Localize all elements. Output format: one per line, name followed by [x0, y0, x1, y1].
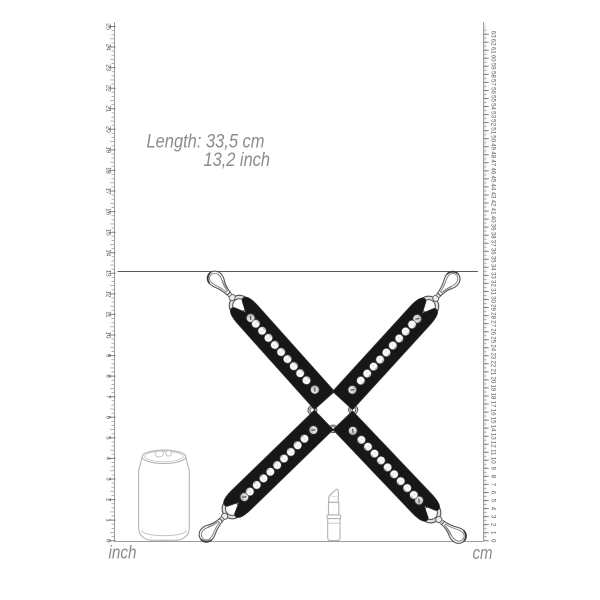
svg-text:13: 13: [104, 270, 111, 277]
svg-text:inch: inch: [109, 542, 137, 563]
svg-text:13,2 inch: 13,2 inch: [204, 150, 271, 171]
svg-text:4: 4: [490, 507, 497, 511]
svg-text:15: 15: [490, 417, 497, 424]
svg-text:7: 7: [104, 395, 111, 399]
svg-text:46: 46: [490, 167, 497, 174]
svg-text:3: 3: [104, 477, 111, 481]
svg-text:4: 4: [104, 457, 111, 461]
svg-text:8: 8: [490, 475, 497, 479]
svg-text:31: 31: [490, 288, 497, 295]
svg-text:48: 48: [490, 151, 497, 158]
svg-text:20: 20: [104, 126, 111, 133]
svg-text:30: 30: [490, 296, 497, 303]
svg-text:58: 58: [490, 71, 497, 78]
svg-text:28: 28: [490, 312, 497, 319]
svg-text:26: 26: [490, 328, 497, 335]
svg-text:43: 43: [490, 192, 497, 199]
svg-text:25: 25: [104, 23, 111, 30]
svg-text:41: 41: [490, 208, 497, 215]
svg-text:23: 23: [490, 352, 497, 359]
svg-text:40: 40: [490, 216, 497, 223]
svg-text:24: 24: [490, 344, 497, 351]
svg-text:2: 2: [490, 523, 497, 527]
svg-text:1: 1: [490, 531, 497, 535]
svg-text:20: 20: [490, 376, 497, 383]
svg-text:18: 18: [104, 167, 111, 174]
svg-text:29: 29: [490, 304, 497, 311]
svg-text:38: 38: [490, 232, 497, 239]
svg-text:21: 21: [104, 105, 111, 112]
svg-text:9: 9: [490, 467, 497, 471]
svg-text:3: 3: [490, 515, 497, 519]
svg-text:21: 21: [490, 368, 497, 375]
svg-text:53: 53: [490, 111, 497, 118]
svg-text:16: 16: [104, 208, 111, 215]
svg-text:22: 22: [490, 360, 497, 367]
svg-text:6: 6: [490, 491, 497, 495]
svg-text:52: 52: [490, 119, 497, 126]
svg-text:55: 55: [490, 95, 497, 102]
svg-text:60: 60: [490, 55, 497, 62]
svg-text:47: 47: [490, 159, 497, 166]
svg-text:39: 39: [490, 224, 497, 231]
svg-text:36: 36: [490, 248, 497, 255]
svg-text:15: 15: [104, 229, 111, 236]
svg-text:23: 23: [104, 64, 111, 71]
svg-text:63: 63: [490, 31, 497, 38]
svg-text:44: 44: [490, 183, 497, 190]
svg-text:25: 25: [490, 336, 497, 343]
svg-text:22: 22: [104, 85, 111, 92]
svg-text:6: 6: [104, 416, 111, 420]
svg-text:37: 37: [490, 240, 497, 247]
svg-text:8: 8: [104, 374, 111, 378]
svg-text:cm: cm: [473, 542, 493, 563]
svg-text:19: 19: [490, 384, 497, 391]
svg-text:18: 18: [490, 393, 497, 400]
svg-text:12: 12: [490, 441, 497, 448]
svg-text:59: 59: [490, 63, 497, 70]
svg-text:49: 49: [490, 143, 497, 150]
svg-text:61: 61: [490, 47, 497, 54]
svg-text:16: 16: [490, 409, 497, 416]
svg-text:12: 12: [104, 290, 111, 297]
svg-text:56: 56: [490, 87, 497, 94]
svg-text:62: 62: [490, 39, 497, 46]
svg-text:11: 11: [104, 311, 111, 318]
svg-text:34: 34: [490, 264, 497, 271]
svg-text:17: 17: [490, 401, 497, 408]
svg-text:35: 35: [490, 256, 497, 263]
svg-text:51: 51: [490, 127, 497, 134]
svg-text:1: 1: [104, 518, 111, 522]
svg-text:14: 14: [104, 249, 111, 256]
svg-text:5: 5: [490, 499, 497, 503]
svg-text:32: 32: [490, 280, 497, 287]
svg-text:17: 17: [104, 188, 111, 195]
svg-text:42: 42: [490, 200, 497, 207]
svg-text:5: 5: [104, 436, 111, 440]
svg-text:24: 24: [104, 44, 111, 51]
svg-text:7: 7: [490, 483, 497, 487]
svg-text:27: 27: [490, 320, 497, 327]
svg-text:13: 13: [490, 433, 497, 440]
svg-text:10: 10: [490, 457, 497, 464]
svg-text:45: 45: [490, 175, 497, 182]
svg-text:14: 14: [490, 425, 497, 432]
svg-text:50: 50: [490, 135, 497, 142]
svg-text:9: 9: [104, 354, 111, 358]
svg-text:57: 57: [490, 79, 497, 86]
svg-text:19: 19: [104, 146, 111, 153]
svg-text:54: 54: [490, 103, 497, 110]
svg-text:10: 10: [104, 332, 111, 339]
svg-text:33: 33: [490, 272, 497, 279]
svg-text:2: 2: [104, 498, 111, 502]
svg-text:11: 11: [490, 449, 497, 456]
